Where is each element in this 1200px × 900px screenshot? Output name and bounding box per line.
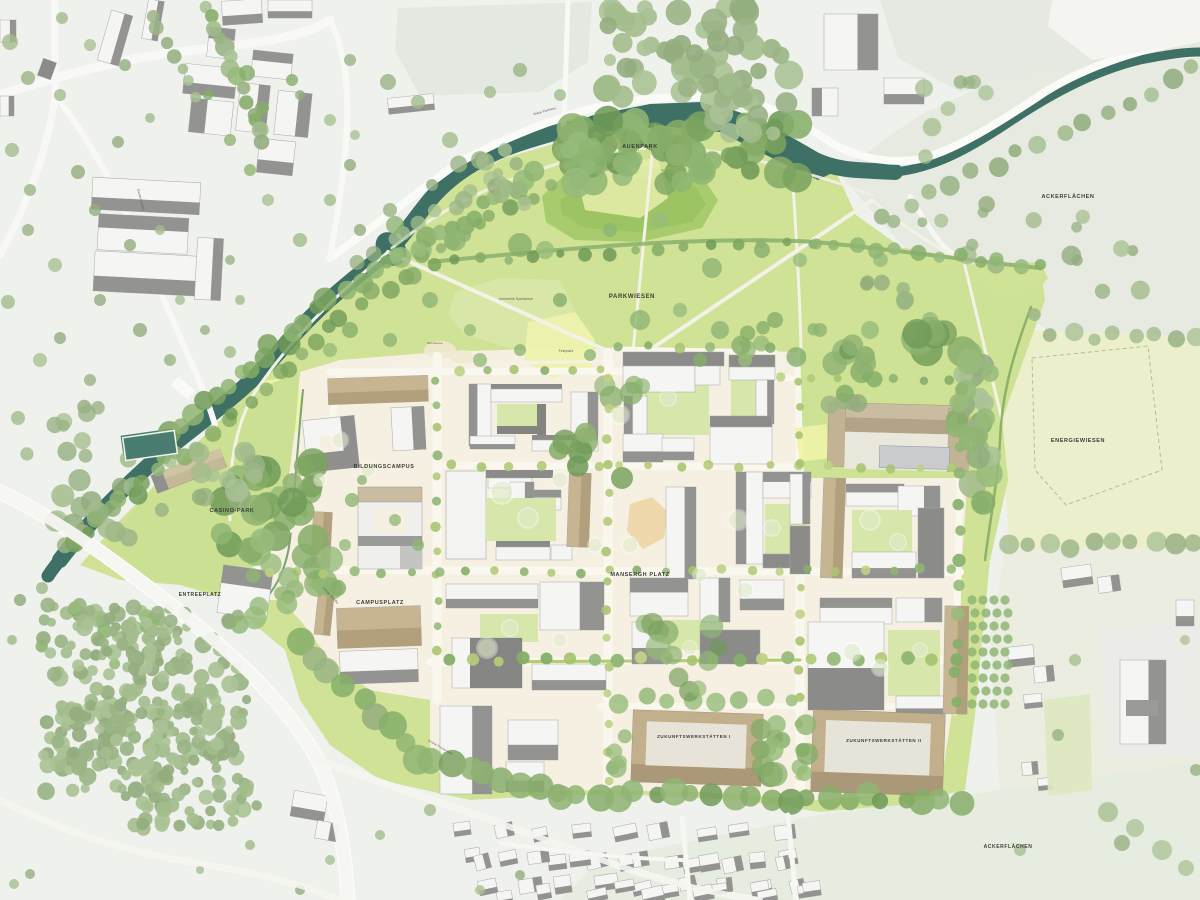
svg-text:CASINO-PARK: CASINO-PARK (210, 508, 255, 514)
svg-text:ENTREEPLATZ: ENTREEPLATZ (179, 592, 222, 598)
svg-text:Festplatz: Festplatz (559, 349, 574, 353)
svg-text:Bolzwiese: Bolzwiese (427, 341, 442, 345)
svg-text:CAMPUSPLATZ: CAMPUSPLATZ (356, 600, 404, 606)
svg-text:PARKWIESEN: PARKWIESEN (609, 294, 655, 300)
svg-text:AUENPARK: AUENPARK (622, 144, 658, 150)
svg-text:ENERGIEWIESEN: ENERGIEWIESEN (1051, 438, 1105, 444)
svg-text:ZUKUNFTSWERKSTÄTTEN II: ZUKUNFTSWERKSTÄTTEN II (846, 737, 922, 743)
svg-text:MANSERGH PLATZ: MANSERGH PLATZ (610, 572, 669, 578)
svg-text:ACKERFLÄCHEN: ACKERFLÄCHEN (1041, 193, 1094, 200)
svg-text:ACKERFLÄCHEN: ACKERFLÄCHEN (984, 843, 1033, 850)
svg-text:BILDUNGSCAMPUS: BILDUNGSCAMPUS (354, 464, 415, 470)
svg-text:Informelle Spielwiese: Informelle Spielwiese (499, 297, 533, 301)
svg-text:ZUKUNFTSWERKSTÄTTEN I: ZUKUNFTSWERKSTÄTTEN I (657, 733, 731, 739)
